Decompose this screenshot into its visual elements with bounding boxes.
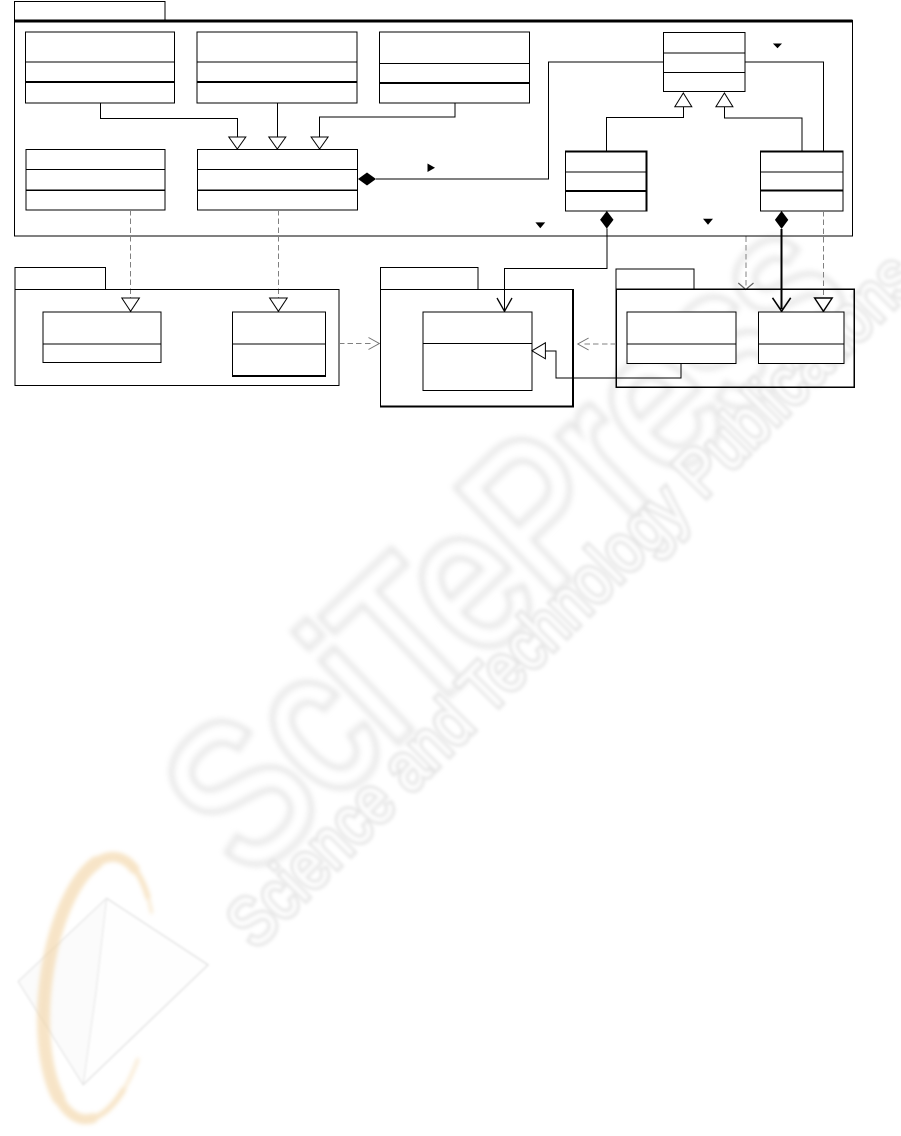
- svg-text:SciTePress: SciTePress: [121, 170, 887, 914]
